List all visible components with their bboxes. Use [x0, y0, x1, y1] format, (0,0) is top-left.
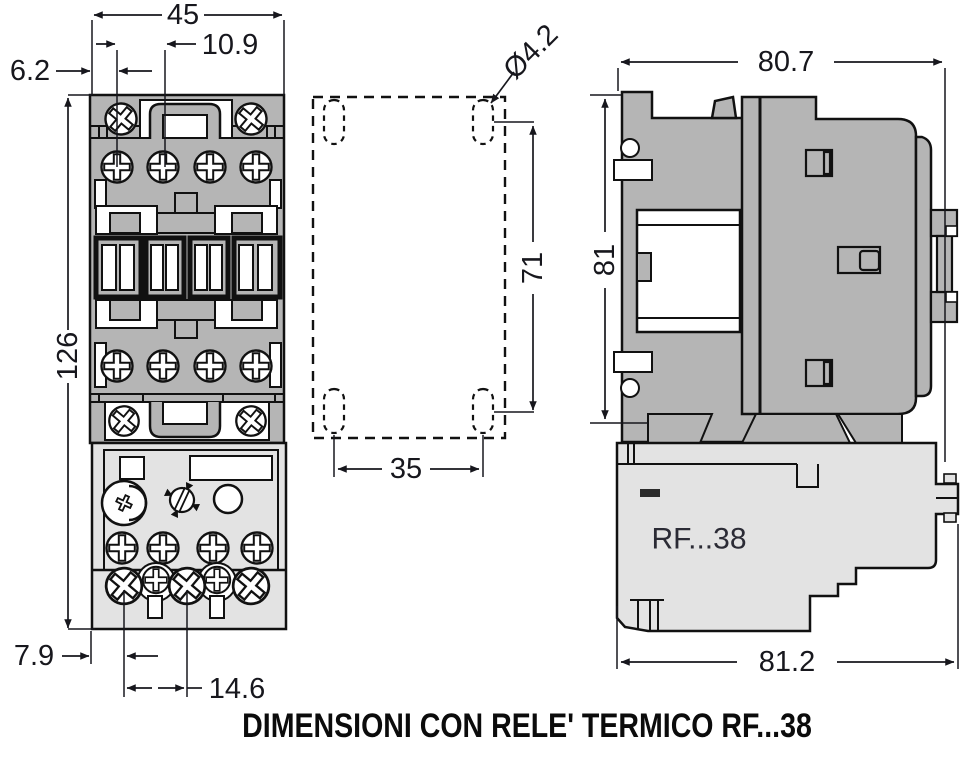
- din-rail-hook: [637, 253, 651, 281]
- dimension-overall-width: 45: [167, 0, 199, 31]
- mounting-slot-hole: [473, 389, 493, 433]
- contactor-front-cap: [916, 137, 931, 396]
- dimension-relay-terminal-pitch: 14.6: [209, 673, 265, 705]
- mounting-slot-hole: [473, 100, 493, 144]
- thermal-relay-front: [92, 443, 286, 629]
- phillips-screw-icon: [204, 567, 230, 593]
- relay-side-slot: [640, 489, 660, 497]
- dimension-hole-diameter: Ø4.2: [497, 18, 564, 85]
- phillips-screw-icon: [143, 567, 169, 593]
- dimension-side-width: 80.7: [758, 46, 814, 78]
- phillips-screw-icon: [241, 351, 272, 382]
- phillips-screw-icon: [102, 351, 133, 382]
- mounting-slot-hole: [324, 100, 344, 144]
- dimension-side-width-with-relay: 81.2: [759, 646, 815, 678]
- contact-pole-windows: [96, 193, 280, 338]
- relay-model-label: RF...38: [651, 523, 746, 556]
- side-view: RF...38 80.7 81 81.2: [589, 46, 958, 678]
- phillips-screw-icon: [198, 533, 229, 564]
- dimension-left-offset: 6.2: [10, 55, 50, 87]
- din-latch-tab: [712, 97, 736, 118]
- mounting-hole: [621, 379, 639, 397]
- test-button: [214, 485, 242, 513]
- phillips-screw-icon: [148, 152, 179, 183]
- phillips-screw-icon: [107, 533, 138, 564]
- dimension-vertical-pitch: 71: [517, 252, 549, 284]
- contactor-side-terminals: [931, 210, 957, 322]
- dimension-horizontal-pitch: 35: [390, 453, 422, 485]
- dimension-overall-height: 126: [52, 332, 84, 380]
- phillips-screw-icon: [195, 351, 226, 382]
- phillips-screw-icon: [242, 533, 273, 564]
- phillips-screw-icon: [148, 351, 179, 382]
- mounting-hole: [621, 139, 639, 157]
- phillips-screw-icon: [195, 152, 226, 183]
- drawing-caption: DIMENSIONI CON RELE' TERMICO RF...38: [242, 707, 812, 745]
- current-adjust-dial: [102, 481, 146, 525]
- mounting-slot-hole: [324, 389, 344, 433]
- front-view: 45 10.9 6.2 126 7.9 14.6: [10, 0, 286, 705]
- relay-label-window: [190, 456, 272, 480]
- drilling-plan: Ø4.2 71 35: [313, 18, 565, 485]
- phillips-screw-icon: [241, 152, 272, 183]
- phillips-screw-icon: [148, 533, 179, 564]
- drilling-plan-dimensions: Ø4.2 71 35: [334, 18, 565, 485]
- dimension-side-height: 81: [589, 244, 621, 276]
- dimension-foot-offset: 7.9: [14, 640, 54, 672]
- mounting-plate-outline: [313, 97, 505, 438]
- technical-drawing-canvas: 45 10.9 6.2 126 7.9 14.6: [0, 0, 975, 778]
- dimension-terminal-pitch: 10.9: [202, 29, 258, 61]
- din-rail-recess: [637, 210, 740, 332]
- technical-drawing-page: 45 10.9 6.2 126 7.9 14.6: [0, 0, 975, 778]
